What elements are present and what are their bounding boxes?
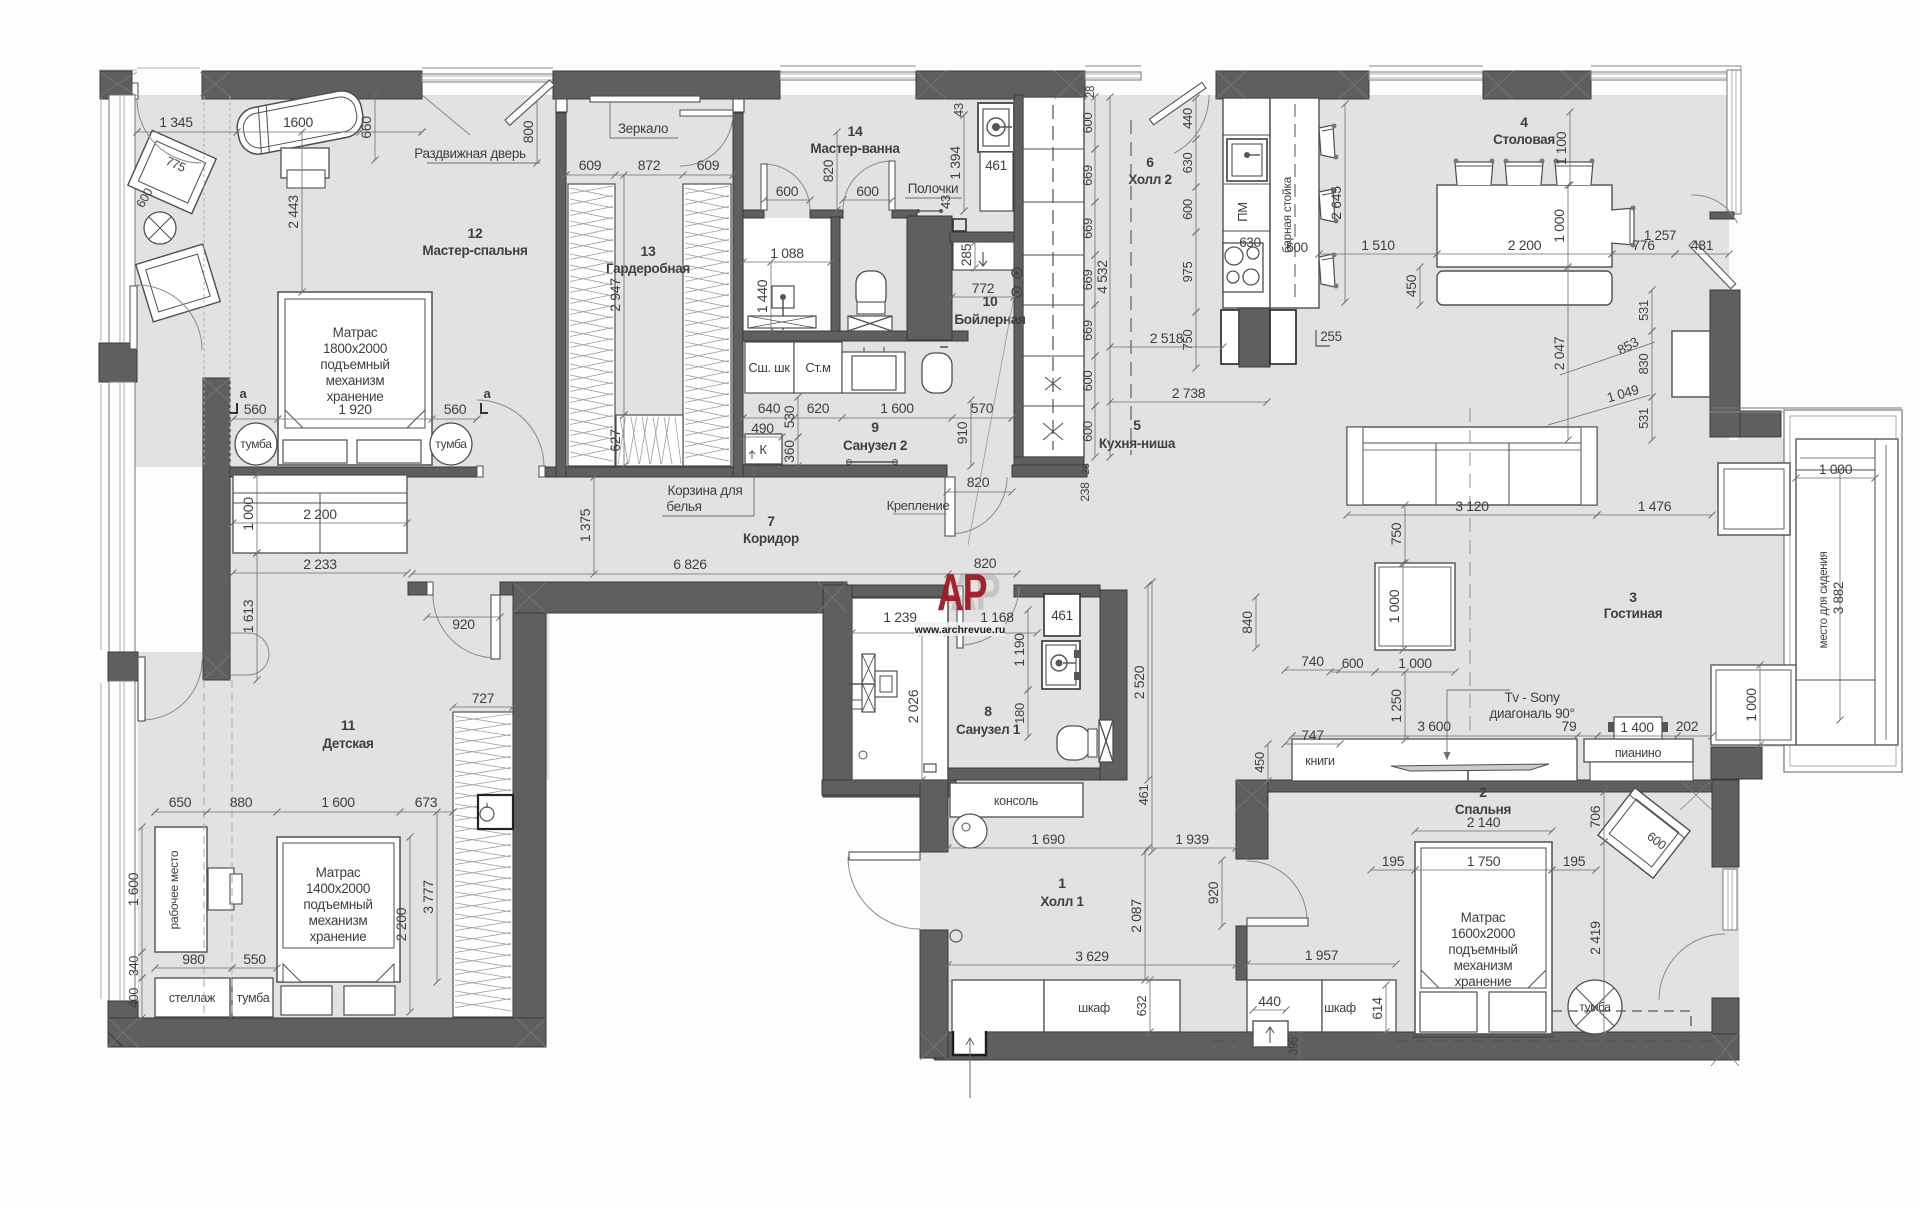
svg-text:Матрас: Матрас	[1461, 910, 1506, 925]
svg-text:400: 400	[127, 988, 141, 1008]
svg-text:1 375: 1 375	[577, 508, 593, 542]
svg-text:840: 840	[1239, 611, 1255, 634]
svg-text:920: 920	[1205, 881, 1221, 904]
svg-text:1 939: 1 939	[1175, 831, 1209, 847]
svg-text:14: 14	[848, 123, 863, 139]
svg-text:1 000: 1 000	[240, 497, 256, 531]
svg-text:1 394: 1 394	[947, 146, 963, 180]
svg-text:43: 43	[938, 195, 953, 209]
svg-text:1 510: 1 510	[1361, 237, 1395, 253]
svg-text:1: 1	[1058, 875, 1066, 891]
svg-text:ПМ: ПМ	[1235, 202, 1250, 222]
svg-text:Кухня-ниша: Кухня-ниша	[1099, 436, 1176, 451]
svg-text:АР: АР	[937, 563, 987, 622]
svg-text:1 600: 1 600	[880, 400, 914, 416]
svg-text:белья: белья	[666, 499, 701, 514]
svg-text:450: 450	[1252, 752, 1267, 773]
svg-text:1 000: 1 000	[1398, 655, 1432, 671]
svg-text:11: 11	[341, 717, 356, 733]
svg-text:600: 600	[1080, 371, 1095, 392]
svg-text:450: 450	[1403, 274, 1419, 297]
svg-text:2 738: 2 738	[1172, 385, 1206, 401]
svg-text:1 257: 1 257	[1644, 228, 1676, 243]
svg-text:910: 910	[954, 421, 970, 444]
svg-text:Полочки: Полочки	[908, 181, 959, 196]
svg-text:2 200: 2 200	[1508, 237, 1542, 253]
svg-text:600: 600	[776, 183, 799, 199]
svg-text:тумба: тумба	[240, 437, 272, 451]
svg-text:1800х2000: 1800х2000	[323, 341, 387, 356]
svg-text:461: 461	[1136, 785, 1151, 806]
svg-text:2 087: 2 087	[1128, 899, 1144, 933]
svg-text:1 957: 1 957	[1305, 947, 1339, 963]
svg-text:600: 600	[1342, 656, 1364, 671]
svg-text:673: 673	[415, 794, 438, 810]
svg-text:620: 620	[807, 400, 830, 416]
svg-text:632: 632	[1134, 996, 1149, 1017]
svg-text:Коридор: Коридор	[743, 531, 799, 546]
svg-text:Гостиная: Гостиная	[1604, 606, 1663, 621]
svg-text:хранение: хранение	[1455, 974, 1512, 989]
svg-text:тумба: тумба	[435, 437, 467, 451]
svg-text:461: 461	[985, 158, 1007, 173]
svg-text:1400х2000: 1400х2000	[306, 881, 370, 896]
svg-text:560: 560	[444, 401, 467, 417]
svg-text:Tv - Sony: Tv - Sony	[1504, 690, 1560, 705]
svg-text:1600: 1600	[283, 114, 313, 130]
svg-text:669: 669	[1080, 218, 1095, 239]
svg-text:К: К	[759, 442, 767, 457]
svg-text:Сш. шк: Сш. шк	[748, 360, 790, 375]
svg-text:600: 600	[1286, 240, 1308, 255]
svg-text:772: 772	[972, 280, 995, 296]
svg-text:механизм: механизм	[309, 913, 368, 928]
svg-text:360: 360	[781, 440, 797, 463]
svg-text:1 000: 1 000	[1819, 461, 1853, 477]
svg-text:1 600: 1 600	[321, 794, 355, 810]
svg-text:книги: книги	[1305, 754, 1335, 768]
svg-text:600: 600	[1180, 199, 1195, 220]
svg-text:Гардеробная: Гардеробная	[606, 261, 690, 276]
svg-text:Бойлерная: Бойлерная	[954, 312, 1025, 327]
svg-text:3 120: 3 120	[1455, 498, 1489, 514]
svg-text:669: 669	[1080, 320, 1095, 341]
svg-text:2 140: 2 140	[1467, 814, 1501, 830]
svg-text:4 532: 4 532	[1094, 260, 1110, 294]
svg-text:2 047: 2 047	[1551, 336, 1567, 370]
svg-text:747: 747	[1301, 727, 1324, 743]
svg-text:531: 531	[1636, 408, 1651, 429]
svg-text:195: 195	[1563, 853, 1586, 869]
svg-text:3 777: 3 777	[420, 880, 436, 914]
svg-text:481: 481	[1691, 237, 1714, 253]
svg-text:2 947: 2 947	[607, 278, 623, 312]
svg-text:490: 490	[751, 420, 774, 436]
svg-text:2 645: 2 645	[1328, 186, 1344, 220]
svg-text:стеллаж: стеллаж	[169, 991, 216, 1005]
svg-text:2 200: 2 200	[303, 506, 337, 522]
svg-text:Корзина для: Корзина для	[668, 483, 743, 498]
svg-text:5: 5	[1133, 417, 1141, 433]
svg-text:2: 2	[1479, 784, 1487, 800]
svg-text:6 826: 6 826	[673, 556, 707, 572]
svg-text:880: 880	[230, 794, 253, 810]
svg-text:820: 820	[820, 159, 836, 182]
svg-text:1 600: 1 600	[125, 872, 141, 906]
svg-text:Зеркало: Зеркало	[618, 121, 668, 136]
svg-text:609: 609	[697, 157, 720, 173]
svg-text:6: 6	[1146, 154, 1154, 170]
svg-text:1 920: 1 920	[338, 401, 372, 417]
svg-text:консоль: консоль	[994, 794, 1038, 808]
svg-text:место для сидения: место для сидения	[1818, 552, 1830, 649]
svg-text:660: 660	[358, 116, 374, 139]
svg-text:пианино: пианино	[1615, 746, 1662, 760]
svg-text:2 520: 2 520	[1131, 665, 1147, 699]
svg-text:9: 9	[871, 419, 879, 435]
svg-text:2 518: 2 518	[1150, 330, 1184, 346]
svg-text:750: 750	[1388, 522, 1404, 545]
svg-text:872: 872	[638, 157, 661, 173]
svg-text:Мастер-спальня: Мастер-спальня	[422, 243, 527, 258]
svg-text:600: 600	[856, 183, 879, 199]
svg-text:1 613: 1 613	[240, 599, 256, 633]
svg-text:шкаф: шкаф	[1324, 1001, 1356, 1015]
svg-text:2 443: 2 443	[285, 195, 301, 229]
svg-text:Детская: Детская	[322, 736, 373, 751]
svg-text:3 629: 3 629	[1075, 948, 1109, 964]
svg-text:Матрас: Матрас	[316, 865, 361, 880]
svg-text:560: 560	[244, 401, 267, 417]
svg-text:238: 238	[1078, 482, 1092, 502]
svg-text:хранение: хранение	[310, 929, 367, 944]
svg-text:440: 440	[1180, 108, 1195, 129]
svg-text:1 400: 1 400	[1620, 719, 1654, 735]
svg-text:3 600: 3 600	[1417, 718, 1451, 734]
svg-text:79: 79	[1562, 718, 1577, 734]
svg-text:530: 530	[781, 405, 797, 428]
svg-text:669: 669	[1080, 270, 1095, 291]
svg-text:727: 727	[472, 690, 495, 706]
svg-text:2 233: 2 233	[303, 556, 337, 572]
svg-text:975: 975	[1180, 262, 1195, 283]
svg-text:1 345: 1 345	[159, 114, 193, 130]
svg-text:Крепление: Крепление	[887, 498, 950, 513]
svg-text:440: 440	[1258, 993, 1281, 1009]
svg-text:1 476: 1 476	[1638, 498, 1672, 514]
svg-text:шкаф: шкаф	[1078, 1001, 1110, 1015]
svg-text:подъемный: подъемный	[303, 897, 372, 912]
svg-text:1 239: 1 239	[883, 609, 917, 625]
svg-text:1 750: 1 750	[1467, 853, 1501, 869]
svg-text:600: 600	[1080, 113, 1095, 134]
svg-text:рабочее место: рабочее место	[167, 850, 181, 929]
svg-text:2 200: 2 200	[393, 907, 409, 941]
svg-text:Санузел 2: Санузел 2	[843, 438, 907, 453]
svg-text:980: 980	[182, 951, 205, 967]
svg-text:3: 3	[1629, 589, 1637, 605]
svg-text:609: 609	[579, 157, 602, 173]
svg-text:7: 7	[767, 513, 775, 529]
svg-text:Матрас: Матрас	[333, 325, 378, 340]
svg-text:13: 13	[641, 243, 656, 259]
svg-text:a: a	[240, 386, 248, 401]
svg-text:1 000: 1 000	[1551, 209, 1567, 243]
svg-text:1 440: 1 440	[754, 279, 770, 313]
svg-text:570: 570	[971, 400, 994, 416]
svg-text:12: 12	[468, 225, 483, 241]
svg-text:подъемный: подъемный	[320, 357, 389, 372]
svg-text:8: 8	[984, 703, 992, 719]
svg-text:630: 630	[1180, 153, 1195, 174]
svg-text:3 882: 3 882	[1831, 582, 1846, 614]
svg-text:706: 706	[1587, 805, 1603, 828]
svg-text:1 000: 1 000	[1743, 688, 1759, 722]
svg-text:2 026: 2 026	[905, 689, 921, 723]
svg-text:Холл 1: Холл 1	[1040, 894, 1084, 909]
svg-text:28: 28	[1080, 463, 1092, 475]
svg-text:4: 4	[1520, 114, 1528, 130]
svg-text:920: 920	[452, 616, 475, 632]
svg-text:тумба: тумба	[237, 991, 270, 1005]
svg-text:640: 640	[758, 400, 781, 416]
svg-text:1 690: 1 690	[1031, 831, 1065, 847]
svg-text:1 190: 1 190	[1011, 633, 1027, 667]
svg-text:механизм: механизм	[326, 373, 385, 388]
svg-text:1 100: 1 100	[1553, 131, 1569, 165]
svg-text:механизм: механизм	[1454, 958, 1513, 973]
svg-text:1600х2000: 1600х2000	[1451, 926, 1515, 941]
svg-text:2 419: 2 419	[1587, 921, 1603, 955]
svg-text:Ст.м: Ст.м	[805, 360, 831, 375]
svg-text:подъемный: подъемный	[1448, 942, 1517, 957]
svg-text:669: 669	[1080, 165, 1095, 186]
svg-text:600: 600	[1080, 421, 1095, 442]
svg-text:Мастер-ванна: Мастер-ванна	[810, 141, 900, 156]
svg-text:1 000: 1 000	[1386, 589, 1402, 623]
svg-text:627: 627	[607, 429, 623, 452]
svg-text:340: 340	[127, 956, 141, 976]
svg-text:531: 531	[1636, 300, 1651, 321]
svg-text:550: 550	[243, 951, 266, 967]
svg-text:461: 461	[1051, 608, 1073, 623]
svg-text:195: 195	[1382, 853, 1405, 869]
svg-text:тумба: тумба	[1579, 1000, 1611, 1014]
svg-text:285: 285	[958, 243, 974, 266]
svg-text:202: 202	[1676, 718, 1699, 734]
svg-text:395: 395	[1288, 1037, 1300, 1055]
svg-text:800: 800	[520, 120, 536, 143]
svg-text:1 088: 1 088	[770, 245, 804, 261]
svg-text:650: 650	[169, 794, 192, 810]
svg-text:740: 740	[1301, 653, 1324, 669]
svg-text:Холл 2: Холл 2	[1128, 172, 1171, 187]
svg-text:Столовая: Столовая	[1493, 132, 1555, 147]
svg-text:614: 614	[1369, 997, 1385, 1020]
svg-text:1 250: 1 250	[1388, 689, 1404, 723]
svg-text:180: 180	[1012, 703, 1027, 724]
svg-text:630: 630	[1239, 235, 1261, 250]
svg-text:255: 255	[1320, 329, 1342, 344]
svg-text:www.archrevue.ru: www.archrevue.ru	[914, 624, 1006, 636]
svg-text:Раздвижная дверь: Раздвижная дверь	[414, 146, 526, 161]
svg-text:a: a	[484, 386, 492, 401]
svg-text:830: 830	[1636, 354, 1651, 375]
